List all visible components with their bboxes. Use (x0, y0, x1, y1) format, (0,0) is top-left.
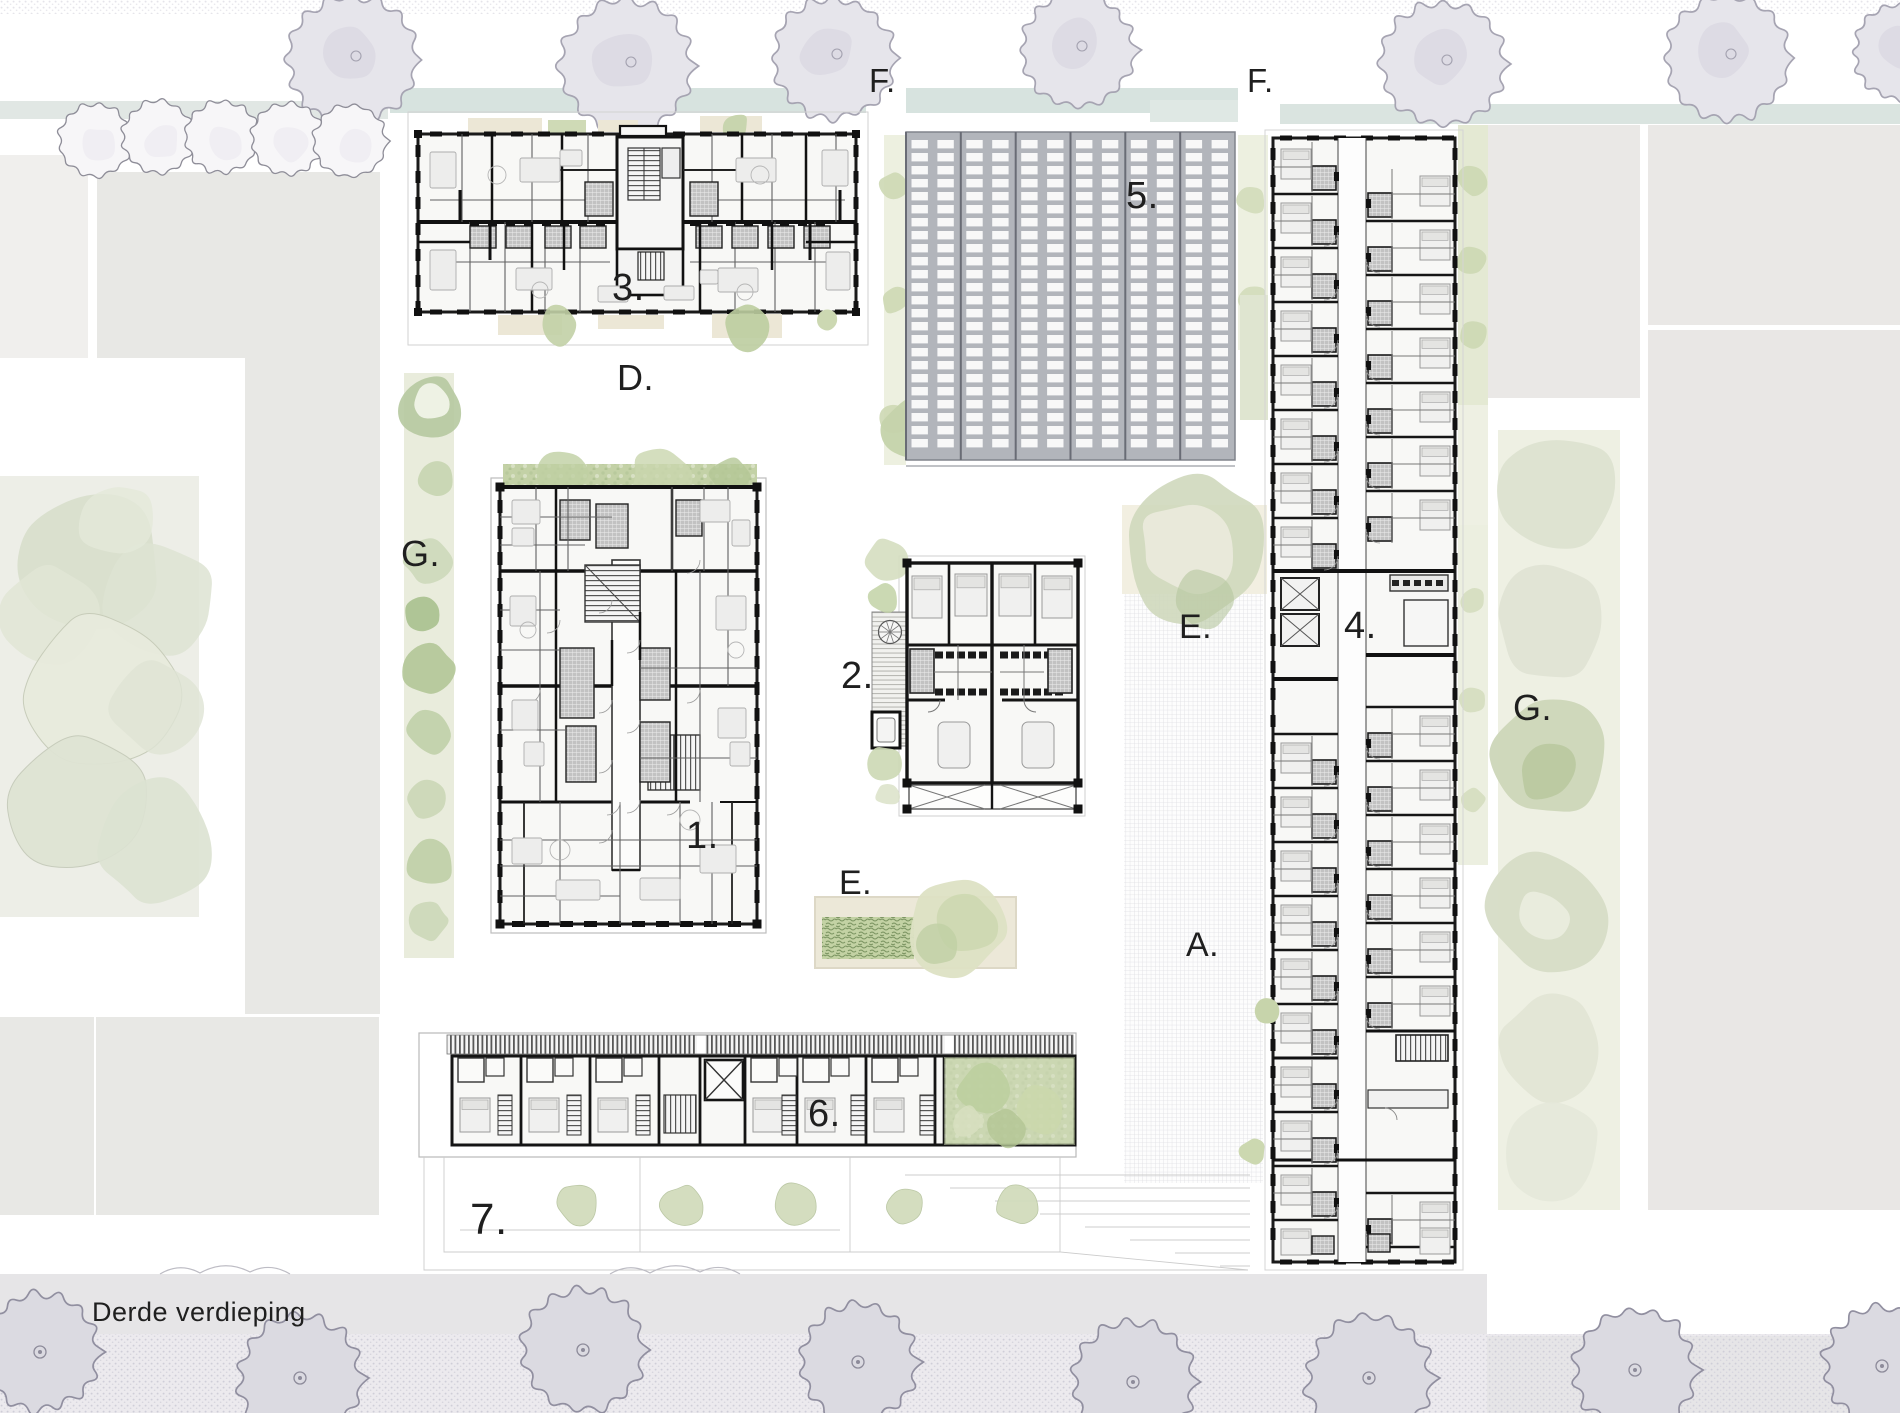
svg-text:E.: E. (1179, 608, 1212, 646)
svg-text:2.: 2. (841, 655, 874, 697)
svg-text:F.: F. (1247, 62, 1274, 99)
svg-text:5.: 5. (1126, 175, 1159, 217)
svg-text:E.: E. (839, 864, 872, 902)
svg-text:F.: F. (869, 62, 896, 99)
svg-text:G.: G. (1513, 687, 1552, 728)
svg-text:7.: 7. (470, 1195, 508, 1244)
svg-text:Derde verdieping: Derde verdieping (92, 1297, 306, 1327)
svg-text:D.: D. (617, 357, 654, 398)
svg-text:G.: G. (401, 533, 440, 574)
svg-text:4.: 4. (1344, 605, 1377, 647)
svg-text:A.: A. (1186, 926, 1219, 964)
svg-text:6.: 6. (808, 1093, 841, 1135)
svg-text:3.: 3. (612, 267, 645, 309)
svg-text:1.: 1. (686, 815, 719, 857)
